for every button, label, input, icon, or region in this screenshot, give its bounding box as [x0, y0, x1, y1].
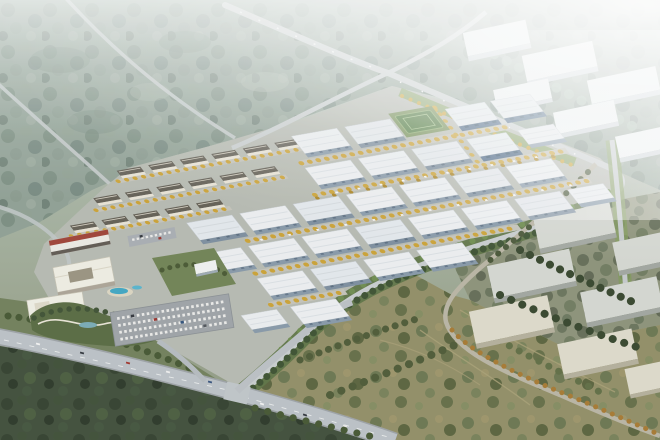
aerial-rendering: Aerial rendering of a master-planned log…	[0, 0, 660, 440]
screenshot-stage: Aerial rendering of a master-planned log…	[0, 0, 660, 440]
rendering-canvas: Aerial rendering of a master-planned log…	[0, 0, 660, 440]
fog-overlay	[0, 0, 660, 440]
